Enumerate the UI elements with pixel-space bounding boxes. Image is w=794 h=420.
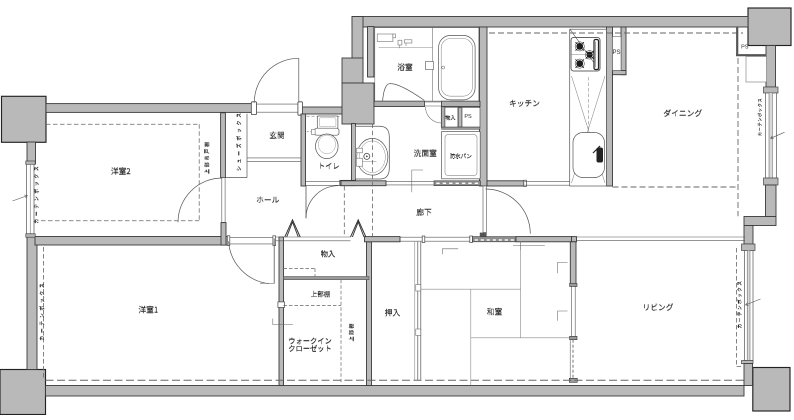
svg-text:PS: PS: [612, 50, 620, 56]
svg-text:PS: PS: [741, 45, 749, 51]
svg-text:PS: PS: [464, 114, 472, 120]
